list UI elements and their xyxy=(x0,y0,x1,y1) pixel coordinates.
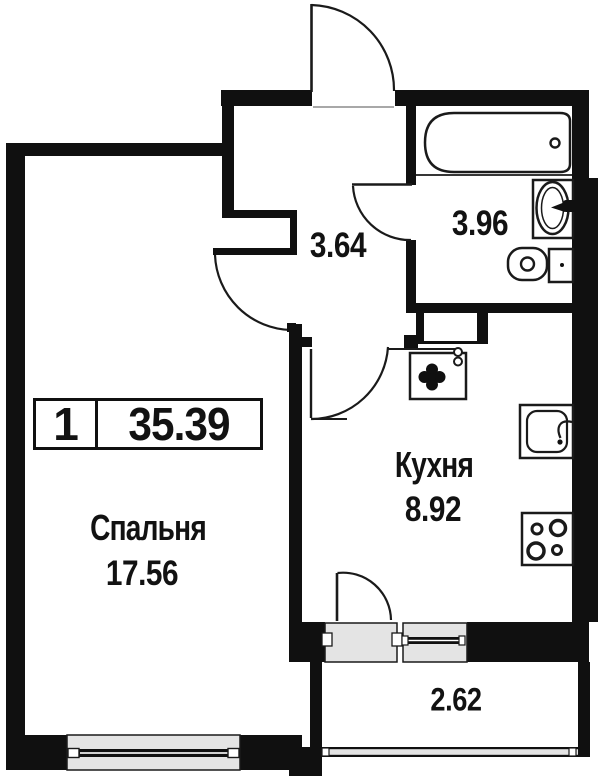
window-jamb xyxy=(68,749,79,758)
door-leaf xyxy=(213,248,297,255)
wall xyxy=(222,210,297,218)
toilet-tank-button xyxy=(560,263,564,267)
wall xyxy=(221,90,312,106)
sink-drain xyxy=(557,439,562,444)
wall xyxy=(302,337,312,347)
stove-burner xyxy=(532,524,542,534)
toilet-drain xyxy=(521,258,534,271)
bathroom-area-label: 3.96 xyxy=(452,204,508,244)
stove-burner xyxy=(551,521,566,536)
door-jamb xyxy=(392,633,402,646)
wall xyxy=(289,747,322,776)
sink-basin xyxy=(527,411,567,452)
vent-shaft-right xyxy=(477,313,488,344)
bedroom-label: Спальня xyxy=(90,507,206,549)
sink-faucet-base xyxy=(563,200,578,212)
window-jamb xyxy=(402,636,408,645)
door-jamb xyxy=(287,323,296,332)
window-jamb xyxy=(459,636,465,645)
vent-shaft-left xyxy=(416,313,424,344)
door-swing-arc xyxy=(215,255,291,330)
window-glazing-gap xyxy=(80,752,228,754)
bathtub-icon xyxy=(416,113,572,175)
balcony-area-label: 2.62 xyxy=(430,682,481,719)
floor-plan: Спальня 17.56 Кухня 8.92 3.64 3.96 2.62 … xyxy=(0,0,600,776)
toilet-icon xyxy=(508,248,573,282)
door-swing-arc xyxy=(311,347,388,419)
bedroom-door xyxy=(213,248,297,332)
stove-icon xyxy=(522,513,573,565)
railing-bottom-line xyxy=(322,755,578,757)
washer-hose-bottom xyxy=(454,358,462,366)
wall xyxy=(406,104,416,185)
balcony-window xyxy=(402,623,467,662)
badge-rooms-count: 1 xyxy=(36,401,98,447)
bathtub-drain xyxy=(551,139,560,148)
door-swing-arc xyxy=(312,5,395,91)
kitchen-label: Кухня xyxy=(395,444,473,486)
wall xyxy=(6,735,67,770)
railing-end-cap xyxy=(569,748,576,756)
wall xyxy=(6,143,234,156)
window-jamb xyxy=(228,749,239,758)
wall xyxy=(467,622,589,662)
wall xyxy=(406,303,572,313)
wall xyxy=(310,662,322,757)
bathroom-sink-icon xyxy=(533,180,578,238)
bathtub-outline xyxy=(425,113,570,172)
kitchen-area-label: 8.92 xyxy=(405,490,461,530)
stove-burner xyxy=(553,546,562,555)
bedroom-area-label: 17.56 xyxy=(106,554,178,594)
balcony-railing xyxy=(322,747,578,757)
balcony-door-swing xyxy=(337,573,391,621)
apartment-badge: 1 35.39 xyxy=(33,398,263,450)
wall xyxy=(586,178,598,622)
wall xyxy=(406,240,416,313)
door-jamb xyxy=(322,633,332,646)
wall xyxy=(404,335,418,348)
door-panel xyxy=(325,623,397,662)
wall xyxy=(578,662,590,757)
badge-total-area: 35.39 xyxy=(104,401,253,447)
entrance-door xyxy=(312,4,395,107)
balcony-door-panel xyxy=(322,623,402,662)
bedroom-window xyxy=(67,735,240,770)
railing-top-line xyxy=(322,747,578,749)
wall xyxy=(395,90,589,106)
washer-hose-top xyxy=(454,348,462,356)
stove-burner xyxy=(528,543,544,559)
door-swing-arc xyxy=(338,573,392,620)
wall xyxy=(289,622,325,662)
wall xyxy=(290,218,297,248)
wall xyxy=(289,324,302,662)
wall xyxy=(6,143,25,770)
washing-machine-icon xyxy=(410,348,466,399)
floor-plan-drawing xyxy=(0,0,600,776)
railing-end-cap xyxy=(322,748,329,756)
kitchen-sink-icon xyxy=(520,405,573,458)
hallway-area-label: 3.64 xyxy=(310,226,366,266)
vent-shaft-bottom xyxy=(416,341,488,344)
vent-shaft xyxy=(416,313,488,344)
window-glazing-gap xyxy=(408,640,460,641)
wall xyxy=(222,90,234,218)
